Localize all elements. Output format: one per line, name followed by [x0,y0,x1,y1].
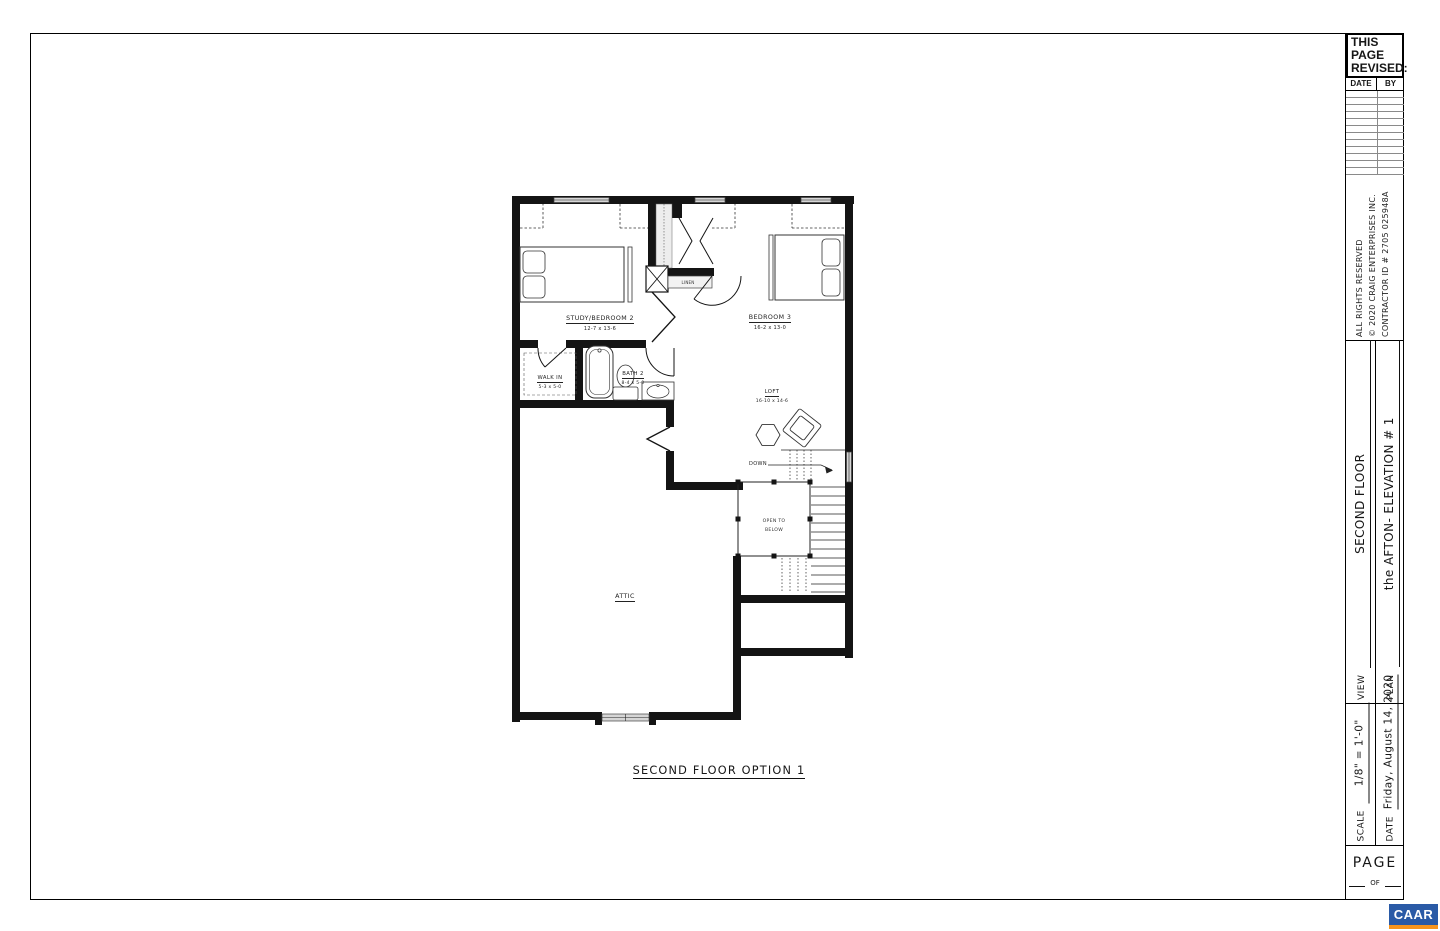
loft-furniture [756,408,822,447]
revision-empty-row [1346,147,1404,154]
revision-header: THIS PAGE REVISED: [1346,33,1404,78]
attic-name: ATTIC [615,593,635,602]
date-value: Friday, August 14, 2020 [1382,675,1398,810]
down-leader-line [768,465,832,470]
drawing-sheet: THIS PAGE REVISED: DATE BY ALL RIGHTS RE… [0,0,1440,931]
view-label: VIEW [1357,675,1367,700]
page-number-blank [1349,879,1365,887]
room-label-study-bedroom2: STUDY/BEDROOM 2 12-7 x 13-6 [540,305,660,332]
room-label-loft: LOFT 16-10 x 14-6 [740,378,804,404]
bed-bedroom2 [520,247,632,302]
revision-empty-row [1346,98,1404,105]
down-label: DOWN [744,461,772,467]
bedroom3-dims: 16-2 x 13-0 [712,325,828,331]
study-bedroom2-dims: 12-7 x 13-6 [540,326,660,332]
title-block: THIS PAGE REVISED: DATE BY ALL RIGHTS RE… [1345,33,1404,900]
plan-value: the AFTON- ELEVATION # 1 [1382,340,1400,667]
page-section: PAGE OF [1346,845,1404,900]
copyright-note: ALL RIGHTS RESERVED © 2020 CRAIG ENTERPR… [1353,173,1399,337]
revision-empty-row [1346,105,1404,112]
page-label: PAGE [1346,855,1404,871]
page-of-row: OF [1346,879,1404,887]
revision-empty-row [1346,133,1404,140]
revision-empty-row [1346,140,1404,147]
scale-value: 1/8" = 1'-0" [1353,703,1369,804]
open-to-below-label: OPEN TO BELOW [746,517,802,535]
floor-plan-svg [509,195,855,731]
revision-title-line2: REVISED: [1351,62,1399,75]
room-label-attic: ATTIC [597,583,653,602]
chair [782,408,821,447]
caar-logo-text: CAAR [1394,907,1434,922]
revision-col-by: BY [1377,78,1404,90]
loft-name: LOFT [765,389,780,397]
stair-treads [811,487,845,592]
bath2-dims: 8-4 x 5-0 [606,381,660,386]
caar-logo: CAAR [1389,904,1438,929]
loft-dims: 16-10 x 14-6 [740,399,804,404]
date-label: DATE [1385,816,1395,841]
date-field: DATE Friday, August 14, 2020 [1376,703,1405,845]
scale-field: SCALE 1/8" = 1'-0" [1347,703,1376,845]
revision-empty-row [1346,161,1404,168]
hex-table [756,425,780,446]
revision-empty-rows [1346,91,1404,175]
revision-column-headers: DATE BY [1346,78,1404,91]
plan-field: PLAN the AFTON- ELEVATION # 1 [1376,340,1405,703]
scale-label: SCALE [1356,810,1366,841]
copyright-line2: © 2020 CRAIG ENTERPRISES INC. [1366,173,1379,337]
linen-label: LINEN [669,280,707,285]
revision-table: THIS PAGE REVISED: DATE BY [1346,33,1404,175]
revision-empty-row [1346,154,1404,161]
copyright-line3: CONTRACTOR ID # 2705 025948A [1379,173,1392,337]
bath2-name: BATH 2 [622,371,644,379]
bedroom3-name: BEDROOM 3 [749,314,791,323]
walk-in-name: WALK IN [537,375,562,383]
revision-empty-row [1346,126,1404,133]
open-to-below-line2: BELOW [746,526,802,535]
page-of-text: OF [1370,879,1380,887]
room-label-bedroom3: BEDROOM 3 16-2 x 13-0 [712,304,828,331]
down-arrow-icon [825,467,833,474]
revision-empty-row [1346,112,1404,119]
revision-title-line1: THIS PAGE [1351,36,1399,62]
attic-angled-opening [647,427,670,451]
copyright-line1: ALL RIGHTS RESERVED [1353,173,1366,337]
room-label-walk-in: WALK IN 5-3 x 5-0 [527,364,573,390]
revision-empty-row [1346,119,1404,126]
revision-empty-row [1346,91,1404,98]
plan-caption-text: SECOND FLOOR OPTION 1 [633,764,806,779]
room-label-bath2: BATH 2 8-4 x 5-0 [606,360,660,386]
plan-caption: SECOND FLOOR OPTION 1 [610,759,828,779]
view-value: SECOND FLOOR [1353,340,1371,668]
bed-bedroom3 [769,235,844,300]
open-to-below-line1: OPEN TO [746,517,802,526]
walk-in-dims: 5-3 x 5-0 [527,385,573,390]
page-total-blank [1385,879,1401,887]
bifold-doors [679,218,713,264]
view-field: VIEW SECOND FLOOR [1347,340,1376,703]
study-bedroom2-name: STUDY/BEDROOM 2 [566,315,634,324]
revision-col-date: DATE [1346,78,1377,90]
